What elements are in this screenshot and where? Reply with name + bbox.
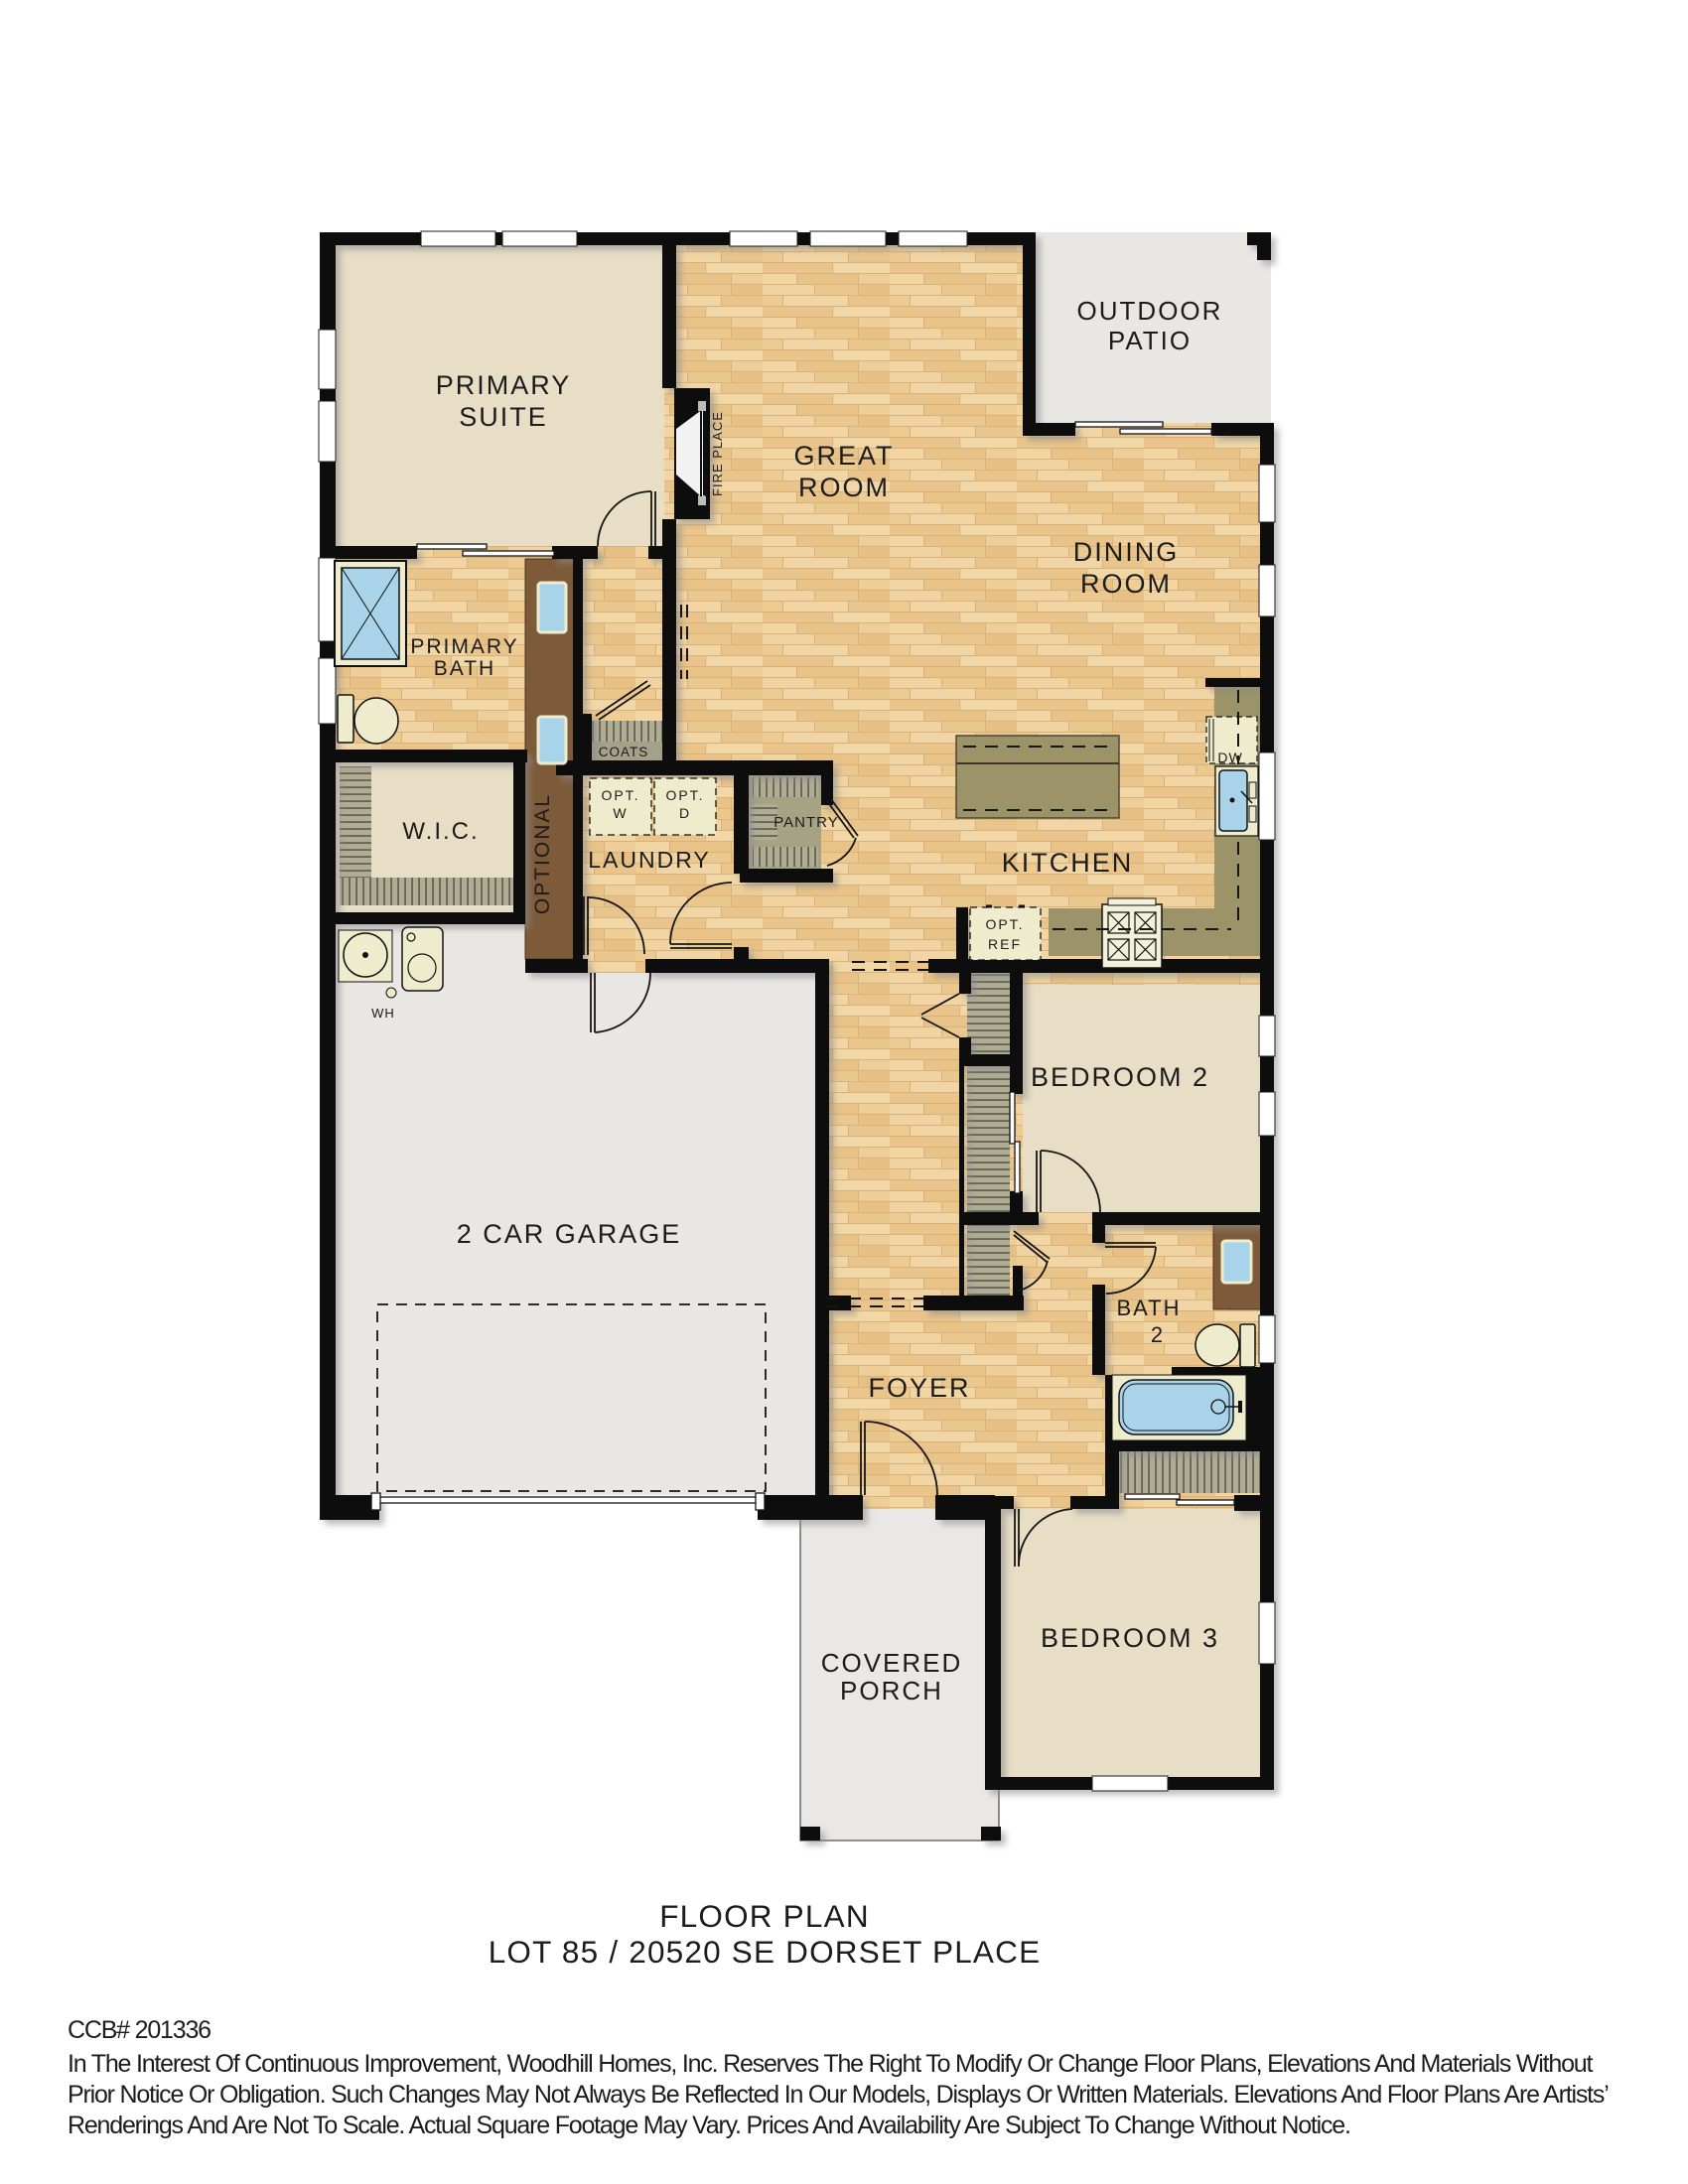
svg-text:SUITE: SUITE — [459, 402, 548, 432]
svg-text:In The Interest Of Continuous: In The Interest Of Continuous Improvemen… — [68, 2050, 1593, 2078]
svg-text:FLOOR PLAN: FLOOR PLAN — [659, 1898, 870, 1934]
svg-text:OPT.: OPT. — [665, 787, 704, 803]
svg-text:PRIMARY: PRIMARY — [436, 370, 572, 400]
svg-text:FIRE PLACE: FIRE PLACE — [710, 411, 725, 496]
svg-text:OPT.: OPT. — [985, 916, 1024, 932]
svg-text:ROOM: ROOM — [1080, 569, 1172, 599]
svg-text:OPTIONAL: OPTIONAL — [531, 793, 554, 914]
svg-text:COATS: COATS — [599, 745, 649, 759]
svg-text:LOT 85 / 20520 SE DORSET PLACE: LOT 85 / 20520 SE DORSET PLACE — [489, 1934, 1042, 1970]
svg-text:PORCH: PORCH — [840, 1676, 943, 1706]
svg-text:Prior Notice Or Obligation. Su: Prior Notice Or Obligation. Such Changes… — [68, 2081, 1609, 2109]
svg-text:WH: WH — [371, 1006, 395, 1021]
svg-text:D: D — [679, 805, 691, 821]
svg-text:ROOM: ROOM — [798, 473, 890, 502]
svg-text:OUTDOOR: OUTDOOR — [1077, 296, 1223, 326]
svg-text:BATH: BATH — [1116, 1296, 1181, 1320]
svg-text:LAUNDRY: LAUNDRY — [588, 847, 711, 873]
svg-text:W.I.C.: W.I.C. — [402, 818, 479, 845]
svg-text:PRIMARY: PRIMARY — [410, 635, 518, 658]
svg-text:W: W — [613, 805, 628, 821]
svg-text:PATIO: PATIO — [1108, 326, 1192, 355]
svg-text:GREAT: GREAT — [793, 441, 894, 471]
svg-text:OPT.: OPT. — [601, 787, 639, 803]
svg-text:COVERED: COVERED — [821, 1648, 963, 1678]
svg-text:BEDROOM 2: BEDROOM 2 — [1031, 1062, 1209, 1092]
svg-text:DW: DW — [1217, 750, 1242, 765]
svg-text:DINING: DINING — [1073, 537, 1180, 567]
svg-text:2 CAR GARAGE: 2 CAR GARAGE — [457, 1219, 682, 1249]
svg-text:CCB# 201336: CCB# 201336 — [68, 2016, 211, 2044]
svg-text:BATH: BATH — [434, 657, 495, 680]
svg-text:BEDROOM 3: BEDROOM 3 — [1041, 1623, 1219, 1653]
svg-text:REF: REF — [988, 936, 1022, 952]
svg-text:KITCHEN: KITCHEN — [1002, 848, 1134, 878]
svg-text:Renderings And Are Not To Scal: Renderings And Are Not To Scale. Actual … — [68, 2112, 1350, 2139]
svg-text:FOYER: FOYER — [868, 1373, 970, 1403]
svg-text:2: 2 — [1151, 1322, 1165, 1347]
svg-text:PANTRY: PANTRY — [774, 814, 838, 831]
